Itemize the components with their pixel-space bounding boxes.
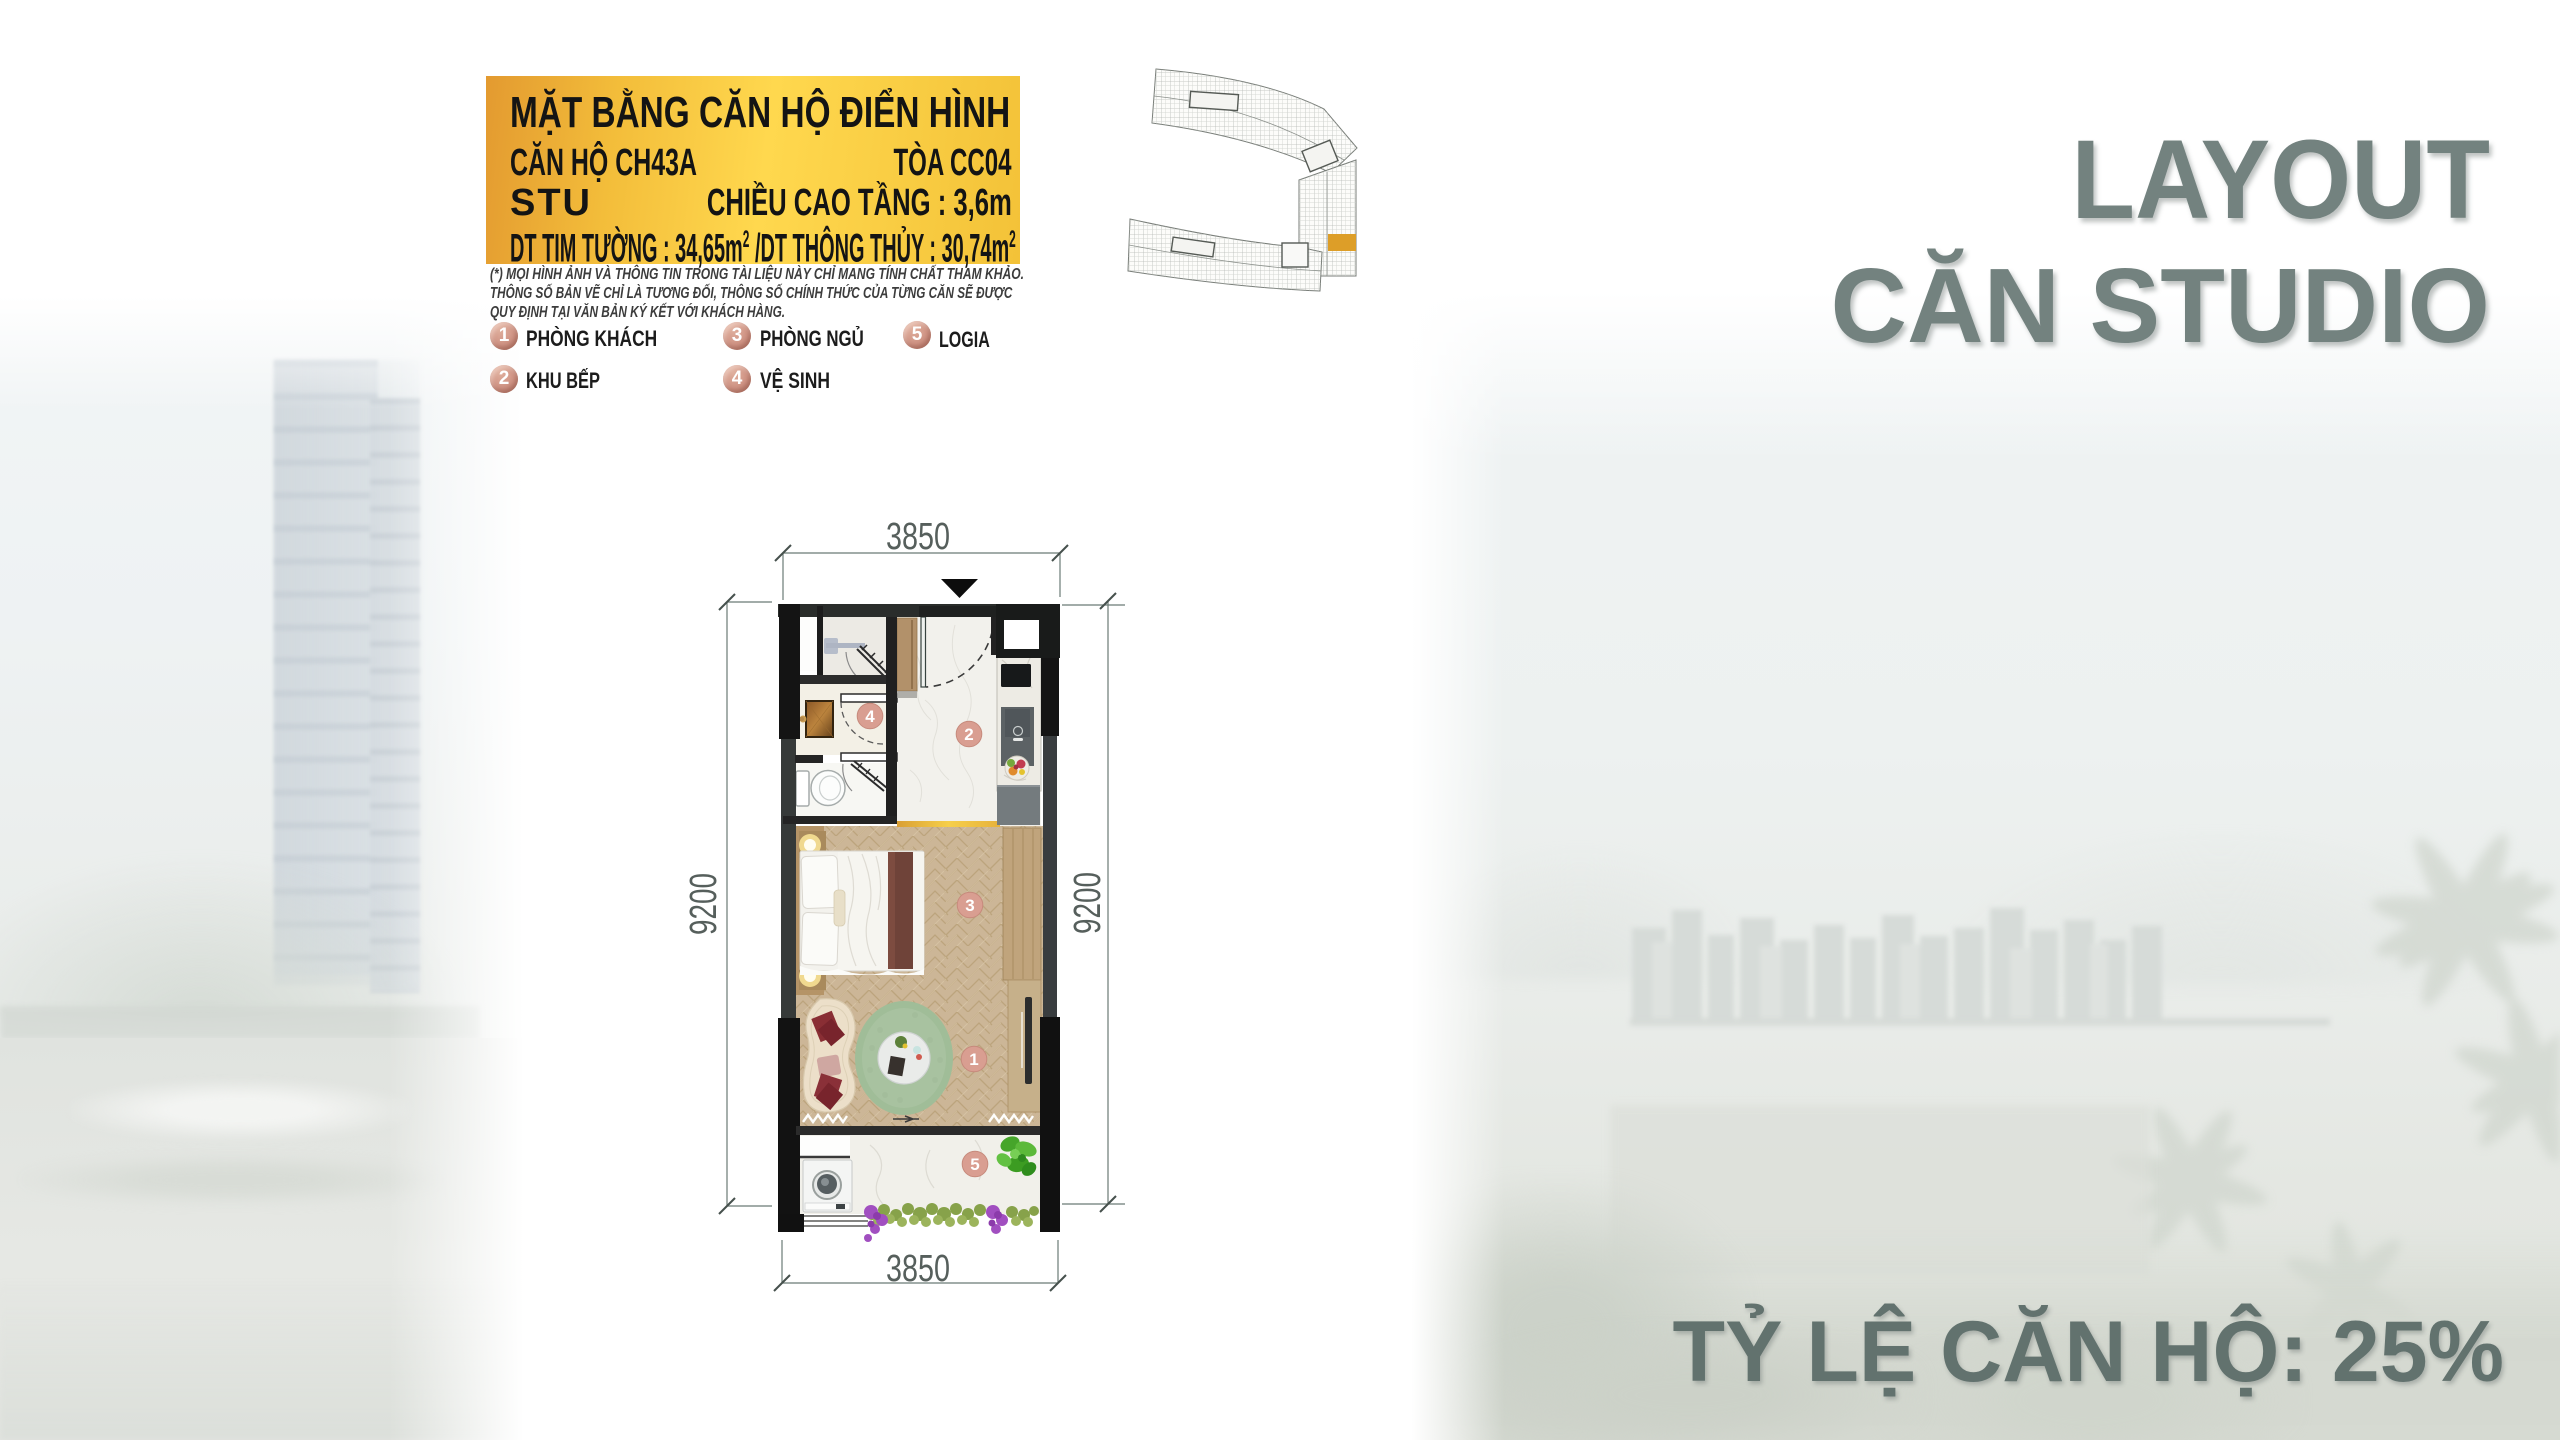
svg-text:3850: 3850: [886, 1248, 950, 1290]
svg-text:2: 2: [964, 725, 973, 744]
svg-text:1: 1: [969, 1050, 978, 1069]
svg-text:9200: 9200: [1067, 872, 1109, 934]
svg-text:3850: 3850: [886, 516, 950, 558]
svg-text:4: 4: [865, 707, 875, 726]
svg-text:9200: 9200: [683, 873, 725, 935]
svg-text:3: 3: [965, 896, 974, 915]
svg-text:5: 5: [970, 1155, 979, 1174]
